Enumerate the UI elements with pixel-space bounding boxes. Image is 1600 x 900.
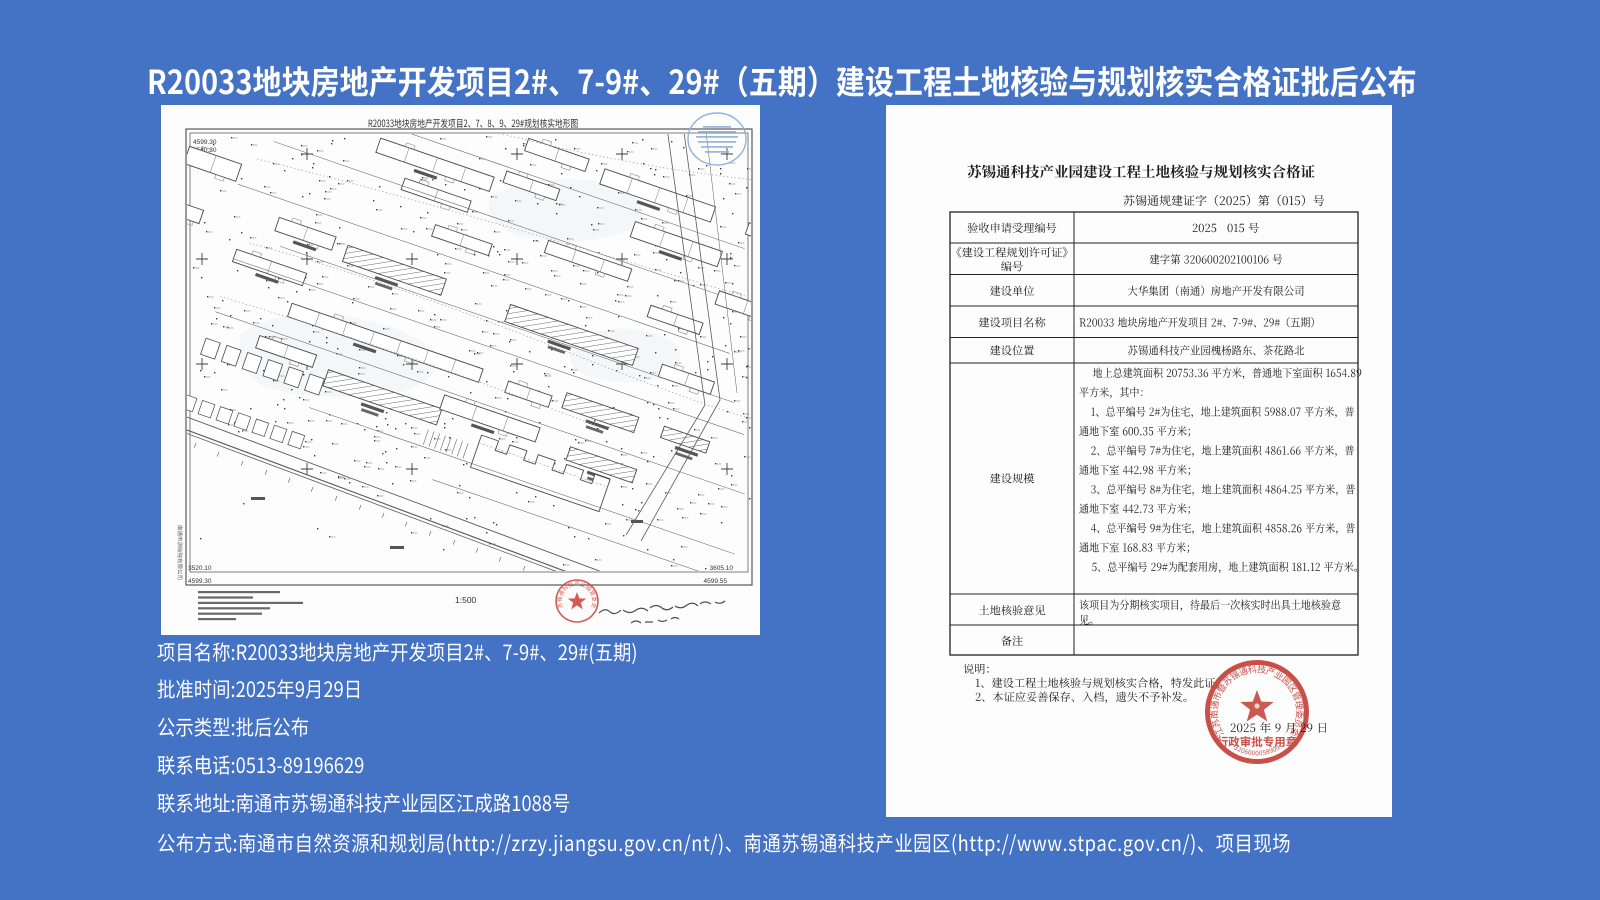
svg-text:1:500: 1:500 — [455, 595, 477, 605]
svg-text:4599.55: 4599.55 — [704, 578, 728, 585]
svg-text:3605.10: 3605.10 — [710, 565, 734, 572]
svg-text:3520.10: 3520.10 — [188, 565, 212, 572]
svg-text:4599.30: 4599.30 — [188, 578, 212, 585]
